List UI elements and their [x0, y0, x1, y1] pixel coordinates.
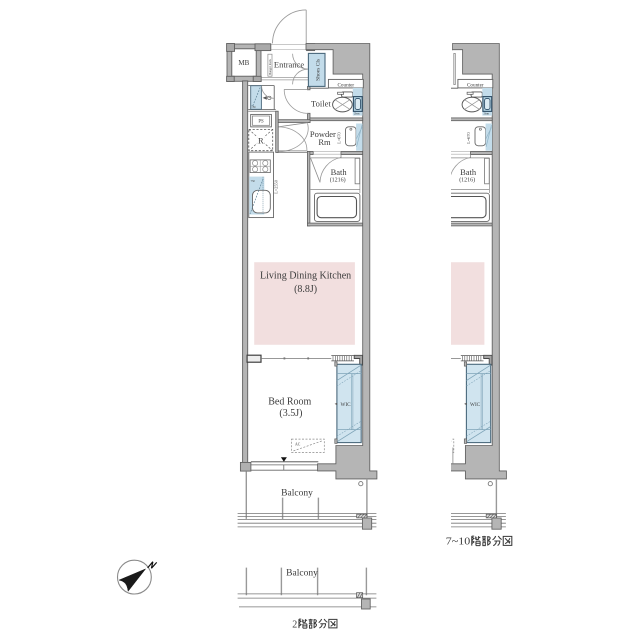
svg-text:Living Dining Kitchen: Living Dining Kitchen: [260, 271, 351, 282]
svg-text:(8.8J): (8.8J): [294, 284, 317, 295]
svg-text:750: 750: [251, 180, 256, 183]
svg-text:2: 2: [292, 619, 297, 630]
svg-text:L=670: L=670: [337, 132, 342, 144]
svg-text:Counter: Counter: [337, 82, 354, 88]
svg-text:R: R: [258, 135, 264, 145]
svg-text:Rm: Rm: [318, 137, 331, 147]
svg-text:Entrance: Entrance: [274, 60, 304, 70]
svg-text:2lsm: 2lsm: [354, 113, 360, 116]
svg-text:PS: PS: [258, 120, 264, 125]
svg-text:WIC: WIC: [341, 402, 352, 408]
svg-text:Bath: Bath: [331, 167, 348, 177]
svg-text:5kg: 5kg: [251, 106, 256, 109]
svg-text:MB: MB: [238, 59, 249, 67]
svg-text:L=2550: L=2550: [274, 180, 279, 194]
svg-text:(1216): (1216): [330, 176, 346, 183]
svg-text:Toilet: Toilet: [311, 98, 331, 108]
svg-text:Hanger Rack: Hanger Rack: [268, 59, 272, 75]
svg-text:Shoes Cls: Shoes Cls: [315, 59, 321, 81]
svg-text:Balcony: Balcony: [286, 568, 318, 578]
svg-text:Bed Room: Bed Room: [268, 397, 311, 408]
svg-text:7~10: 7~10: [446, 537, 471, 548]
svg-text:AC: AC: [295, 443, 301, 447]
svg-text:(3.5J): (3.5J): [279, 408, 302, 419]
svg-text:Balcony: Balcony: [281, 489, 313, 499]
